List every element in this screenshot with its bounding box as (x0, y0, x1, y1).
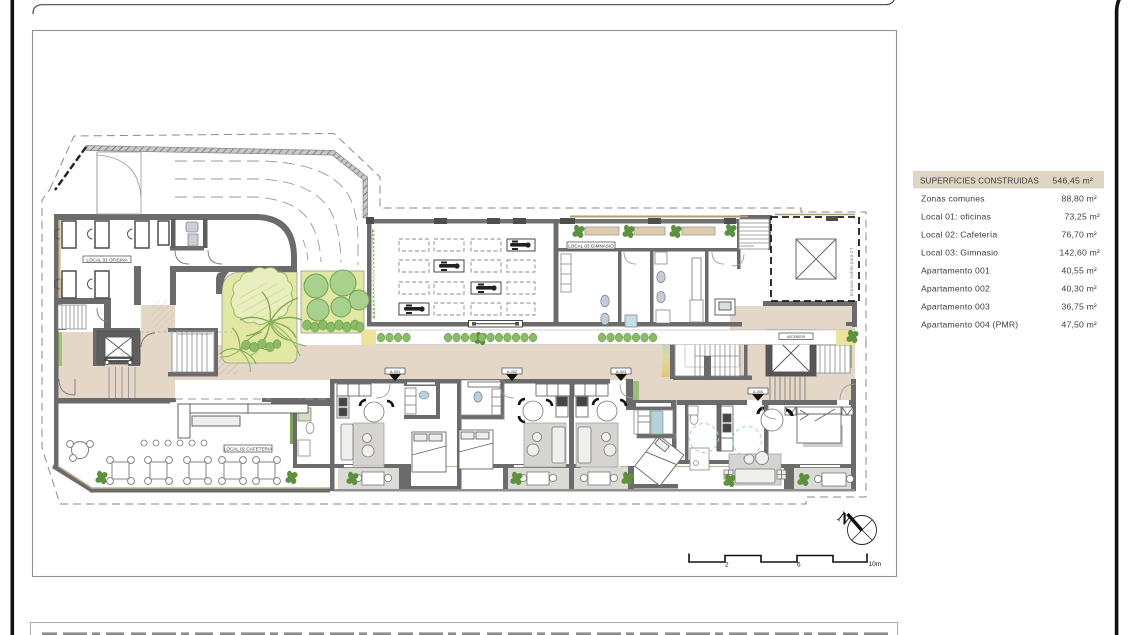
svg-text:10m: 10m (869, 561, 882, 568)
svg-text:2: 2 (725, 562, 729, 569)
svg-text:Apartamento 001: Apartamento 001 (921, 266, 990, 276)
svg-text:40,55 m²: 40,55 m² (1061, 266, 1097, 276)
svg-text:ASCENSOR: ASCENSOR (787, 335, 806, 339)
svg-text:88,80 m²: 88,80 m² (1061, 194, 1097, 204)
svg-text:A-004: A-004 (753, 390, 763, 394)
svg-text:A-002: A-002 (507, 370, 517, 374)
svg-text:142,60 m²: 142,60 m² (1060, 248, 1101, 258)
svg-text:Apartamento 004 (PMR): Apartamento 004 (PMR) (921, 320, 1018, 330)
svg-text:espacio cedido para CT: espacio cedido para CT (849, 247, 854, 296)
svg-text:Local 01: oficinas: Local 01: oficinas (921, 212, 991, 222)
svg-text:Zonas comunes: Zonas comunes (921, 194, 985, 204)
svg-text:76,70 m²: 76,70 m² (1061, 230, 1097, 240)
svg-text:6: 6 (797, 562, 801, 569)
svg-text:Local 02: Cafetería: Local 02: Cafetería (921, 230, 997, 240)
svg-text:546,45 m²: 546,45 m² (1053, 176, 1094, 186)
svg-text:Apartamento 002: Apartamento 002 (921, 284, 990, 294)
svg-text:Local 03: Gimnasio: Local 03: Gimnasio (921, 248, 998, 258)
svg-text:A-003: A-003 (616, 370, 626, 374)
svg-text:Apartamento 003: Apartamento 003 (921, 302, 990, 312)
svg-text:40,30 m²: 40,30 m² (1061, 284, 1097, 294)
svg-text:A-001: A-001 (390, 370, 400, 374)
svg-text:73,25 m²: 73,25 m² (1064, 212, 1100, 222)
svg-text:LOCAL 02 CAFETERIA: LOCAL 02 CAFETERIA (224, 447, 273, 452)
svg-text:36,75 m²: 36,75 m² (1061, 302, 1097, 312)
svg-text:LOCAL 01 OFICINA: LOCAL 01 OFICINA (86, 257, 128, 262)
svg-text:SUPERFICIES CONSTRUIDAS: SUPERFICIES CONSTRUIDAS (920, 177, 1039, 186)
svg-text:LOCAL 03 GIMNASIO: LOCAL 03 GIMNASIO (568, 244, 614, 249)
svg-text:47,50 m²: 47,50 m² (1061, 320, 1097, 330)
